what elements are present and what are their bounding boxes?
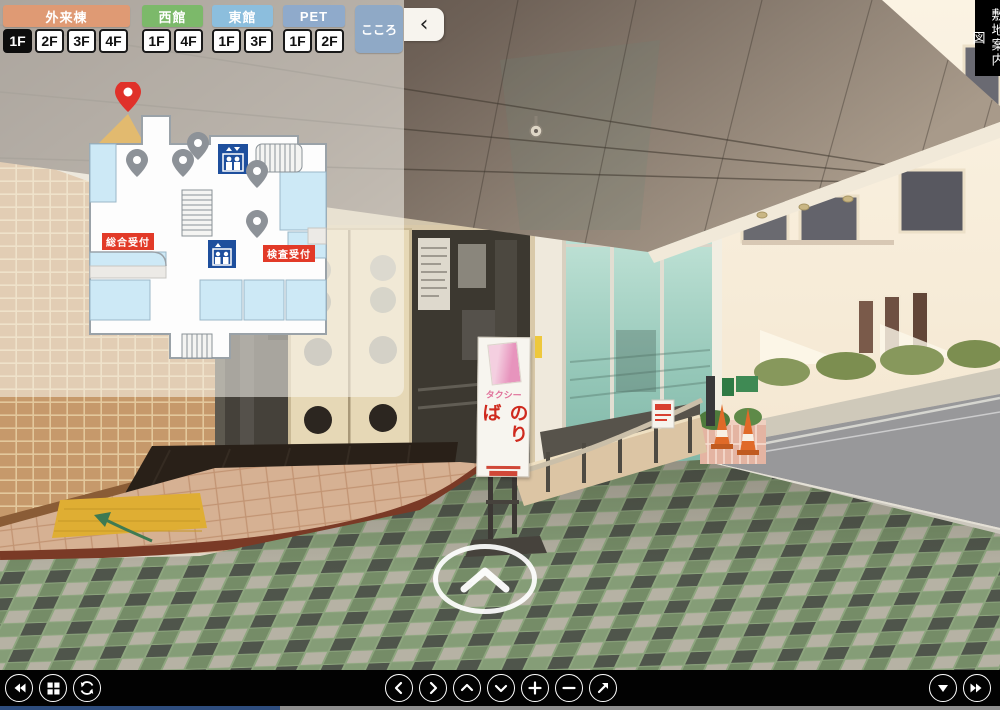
floor-buttons-pet: 1F 2F [283, 29, 344, 53]
chevron-up-hotspot-icon [438, 549, 532, 609]
floor-button-1f[interactable]: 1F [142, 29, 171, 53]
taxi-sign-main-text: のりば [476, 403, 531, 463]
tab-pet[interactable]: PET [283, 5, 345, 27]
fullscreen-button[interactable] [589, 674, 617, 702]
chevron-left-collapse-icon: ‹ [420, 12, 429, 37]
toolbar-right-group [929, 674, 991, 702]
pan-right-icon [425, 680, 441, 696]
zoom-out-icon [561, 680, 577, 696]
taxi-stand-sign: タクシー のりば [476, 337, 530, 478]
toolbar-center-group [385, 674, 617, 702]
taxi-sign-top-text: タクシー [486, 388, 522, 401]
exam-reception-label: 検査受付 [263, 245, 315, 262]
toolbar-left-group [5, 674, 101, 702]
floor-button-4f[interactable]: 4F [99, 29, 128, 53]
fast-forward-button[interactable] [963, 674, 991, 702]
fullscreen-icon [595, 680, 611, 696]
floor-button-2f[interactable]: 2F [35, 29, 64, 53]
fast-forward-icon [969, 680, 985, 696]
floor-buttons-gairaito: 1F 2F 3F 4F [3, 29, 128, 53]
zoom-out-button[interactable] [555, 674, 583, 702]
auto-rotate-icon [79, 680, 95, 696]
floor-buttons-higashikan: 1F 3F [212, 29, 273, 53]
zoom-in-button[interactable] [521, 674, 549, 702]
collapse-panel-button[interactable]: ‹ [404, 8, 444, 41]
taxi-sign-phone [489, 471, 517, 476]
taxi-sign-pamphlet [487, 341, 521, 385]
elevator-icon [218, 144, 248, 174]
general-reception-label: 総合受付 [102, 233, 154, 250]
fast-rewind-button[interactable] [5, 674, 33, 702]
elevator-icon [208, 240, 236, 268]
floor-plan [82, 82, 334, 360]
move-forward-hotspot[interactable] [433, 544, 537, 614]
taxi-sign-fineprint [486, 466, 520, 469]
thumbnail-grid-icon [46, 681, 61, 696]
floor-map: 総合受付 検査受付 [82, 82, 334, 360]
scroll-thumb[interactable] [0, 706, 280, 710]
pan-up-icon [459, 680, 475, 696]
tab-gairaito[interactable]: 外来棟 [3, 5, 130, 27]
virtual-tour-viewer: タクシー のりば [0, 0, 1000, 710]
floor-button-2f[interactable]: 2F [315, 29, 344, 53]
viewer-toolbar [0, 670, 1000, 706]
floor-button-1f[interactable]: 1F [3, 29, 32, 53]
auto-rotate-button[interactable] [73, 674, 101, 702]
pan-down-icon [493, 680, 509, 696]
zoom-in-icon [527, 680, 543, 696]
thumbnail-grid-button[interactable] [39, 674, 67, 702]
current-position-pin [115, 82, 141, 112]
floor-button-4f[interactable]: 4F [174, 29, 203, 53]
pan-down-button[interactable] [487, 674, 515, 702]
pan-right-button[interactable] [419, 674, 447, 702]
site-map-button[interactable]: 敷地案内図 [975, 0, 1000, 76]
fast-rewind-icon [11, 680, 27, 696]
pan-up-button[interactable] [453, 674, 481, 702]
kokoro-button[interactable]: こころ [355, 5, 403, 53]
floor-button-3f[interactable]: 3F [67, 29, 96, 53]
hide-controls-icon [935, 680, 951, 696]
floor-button-3f[interactable]: 3F [244, 29, 273, 53]
pan-left-button[interactable] [385, 674, 413, 702]
hide-controls-button[interactable] [929, 674, 957, 702]
bottom-scroll-strip[interactable] [0, 706, 1000, 710]
floor-button-1f[interactable]: 1F [283, 29, 312, 53]
tab-higashikan[interactable]: 東館 [212, 5, 273, 27]
tab-nishikan[interactable]: 西館 [142, 5, 203, 27]
floor-buttons-nishikan: 1F 4F [142, 29, 203, 53]
floor-button-1f[interactable]: 1F [212, 29, 241, 53]
pan-left-icon [391, 680, 407, 696]
